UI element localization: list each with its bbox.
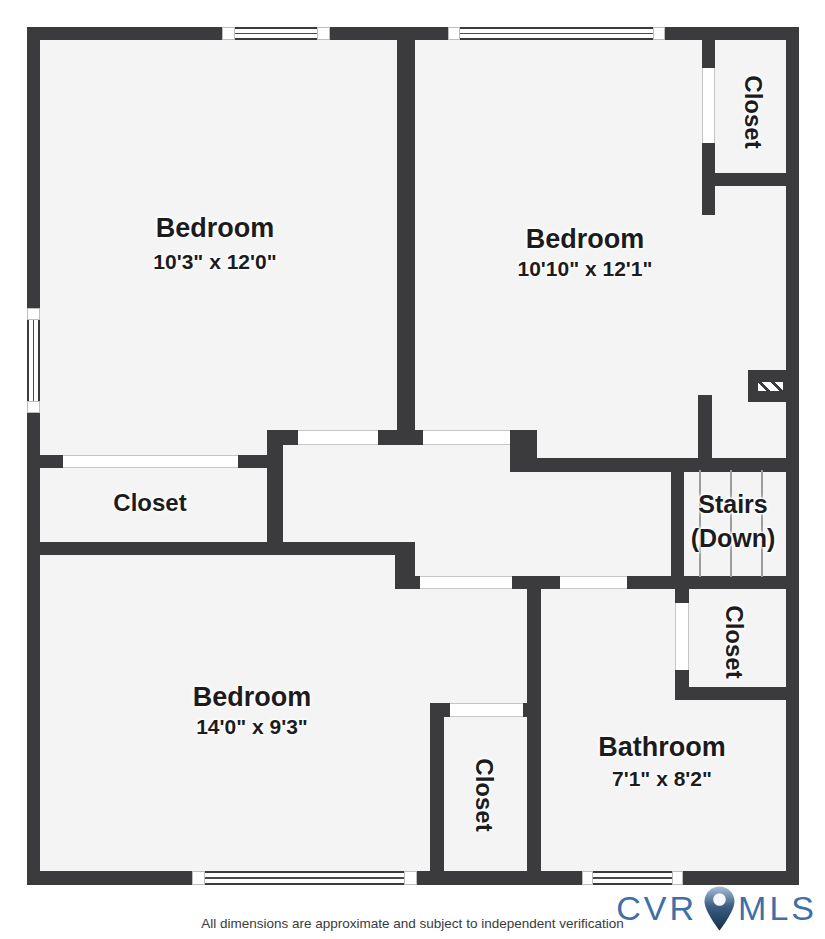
wall	[527, 458, 786, 472]
bedroom1-label: Bedroom	[156, 213, 275, 244]
wall	[671, 470, 684, 576]
closet-top-right-label: Closet	[739, 75, 767, 148]
wall	[675, 687, 786, 700]
window-cap	[672, 871, 683, 885]
window-cap	[317, 27, 330, 40]
logo-mls-text: MLS	[738, 889, 817, 928]
wall	[512, 576, 560, 589]
wall	[702, 40, 715, 68]
wall	[378, 430, 423, 445]
wall	[430, 703, 444, 871]
wall	[27, 542, 415, 555]
logo-cvr-text: CVR	[616, 889, 697, 928]
wall	[267, 430, 283, 555]
door-opening	[702, 68, 715, 143]
door-opening	[423, 430, 510, 445]
bathroom-label: Bathroom	[598, 732, 726, 763]
window	[205, 871, 404, 885]
wall	[675, 589, 689, 603]
wall	[430, 703, 450, 717]
cvr-mls-logo: CVR MLS	[616, 886, 817, 931]
door-opening	[450, 703, 523, 717]
closet-left-label: Closet	[113, 489, 186, 517]
door-opening	[63, 455, 238, 468]
window	[460, 27, 653, 40]
bathroom-dimensions: 7'1" x 8'2"	[612, 767, 712, 791]
closet-bottom-center-label: Closet	[470, 758, 498, 831]
wall	[523, 703, 541, 717]
wall	[627, 576, 786, 589]
window-cap	[582, 871, 593, 885]
bedroom2-dimensions: 10'10" x 12'1"	[517, 257, 652, 281]
map-pin-icon	[704, 886, 735, 931]
window	[27, 320, 40, 401]
chimney-niche-hatch	[757, 381, 784, 392]
wall	[27, 27, 799, 40]
wall	[527, 589, 541, 879]
window-cap	[404, 871, 417, 885]
wall	[27, 455, 63, 468]
stairs-label-line2: (Down)	[691, 522, 776, 556]
wall	[397, 40, 415, 432]
floor-plan: Bedroom 10'3" x 12'0" Bedroom 10'10" x 1…	[0, 0, 825, 939]
bedroom1-dimensions: 10'3" x 12'0"	[153, 250, 276, 274]
door-opening	[298, 430, 378, 445]
window	[593, 871, 672, 885]
window-cap	[192, 871, 205, 885]
wall	[702, 173, 786, 186]
wall	[238, 455, 270, 468]
bedroom3-dimensions: 14'0" x 9'3"	[196, 715, 308, 739]
window-cap	[448, 27, 460, 40]
window-cap	[222, 27, 235, 40]
window	[235, 27, 317, 40]
window-cap	[27, 401, 40, 413]
wall	[786, 27, 799, 885]
stairs-label-line1: Stairs	[691, 488, 776, 522]
bedroom2-label: Bedroom	[526, 224, 645, 255]
window-cap	[27, 308, 40, 320]
wall	[698, 395, 712, 470]
closet-bottom-right-label: Closet	[720, 605, 748, 678]
door-opening	[420, 576, 512, 589]
window-cap	[653, 27, 665, 40]
bedroom3-label: Bedroom	[193, 682, 312, 713]
stairs-label: Stairs (Down)	[691, 488, 776, 556]
door-opening	[560, 576, 627, 589]
door-opening	[675, 603, 689, 670]
